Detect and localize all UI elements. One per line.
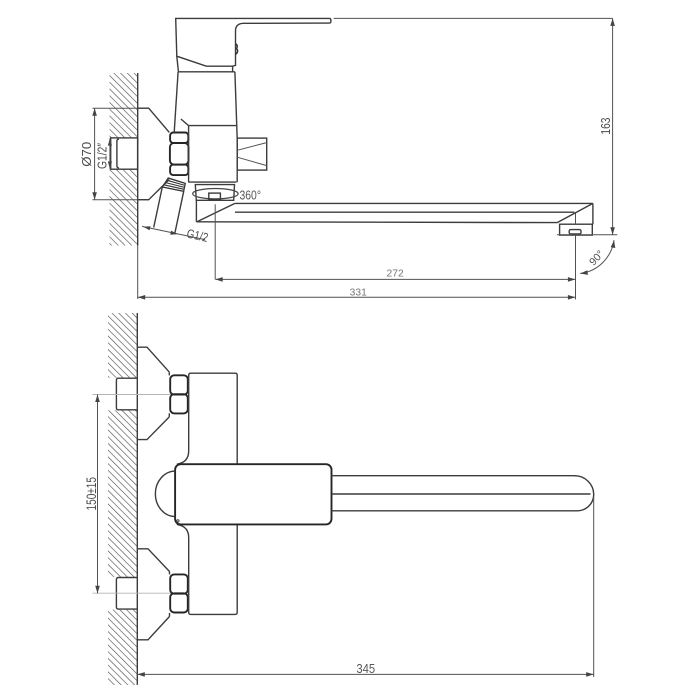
svg-text:360°: 360° xyxy=(240,188,262,202)
svg-text:272: 272 xyxy=(387,269,404,280)
svg-text:331: 331 xyxy=(350,288,367,299)
svg-text:Ø70: Ø70 xyxy=(80,142,94,167)
svg-text:150±15: 150±15 xyxy=(83,477,99,511)
svg-text:163: 163 xyxy=(599,118,613,135)
svg-text:345: 345 xyxy=(356,661,375,676)
svg-text:G1/2″: G1/2″ xyxy=(95,143,109,169)
